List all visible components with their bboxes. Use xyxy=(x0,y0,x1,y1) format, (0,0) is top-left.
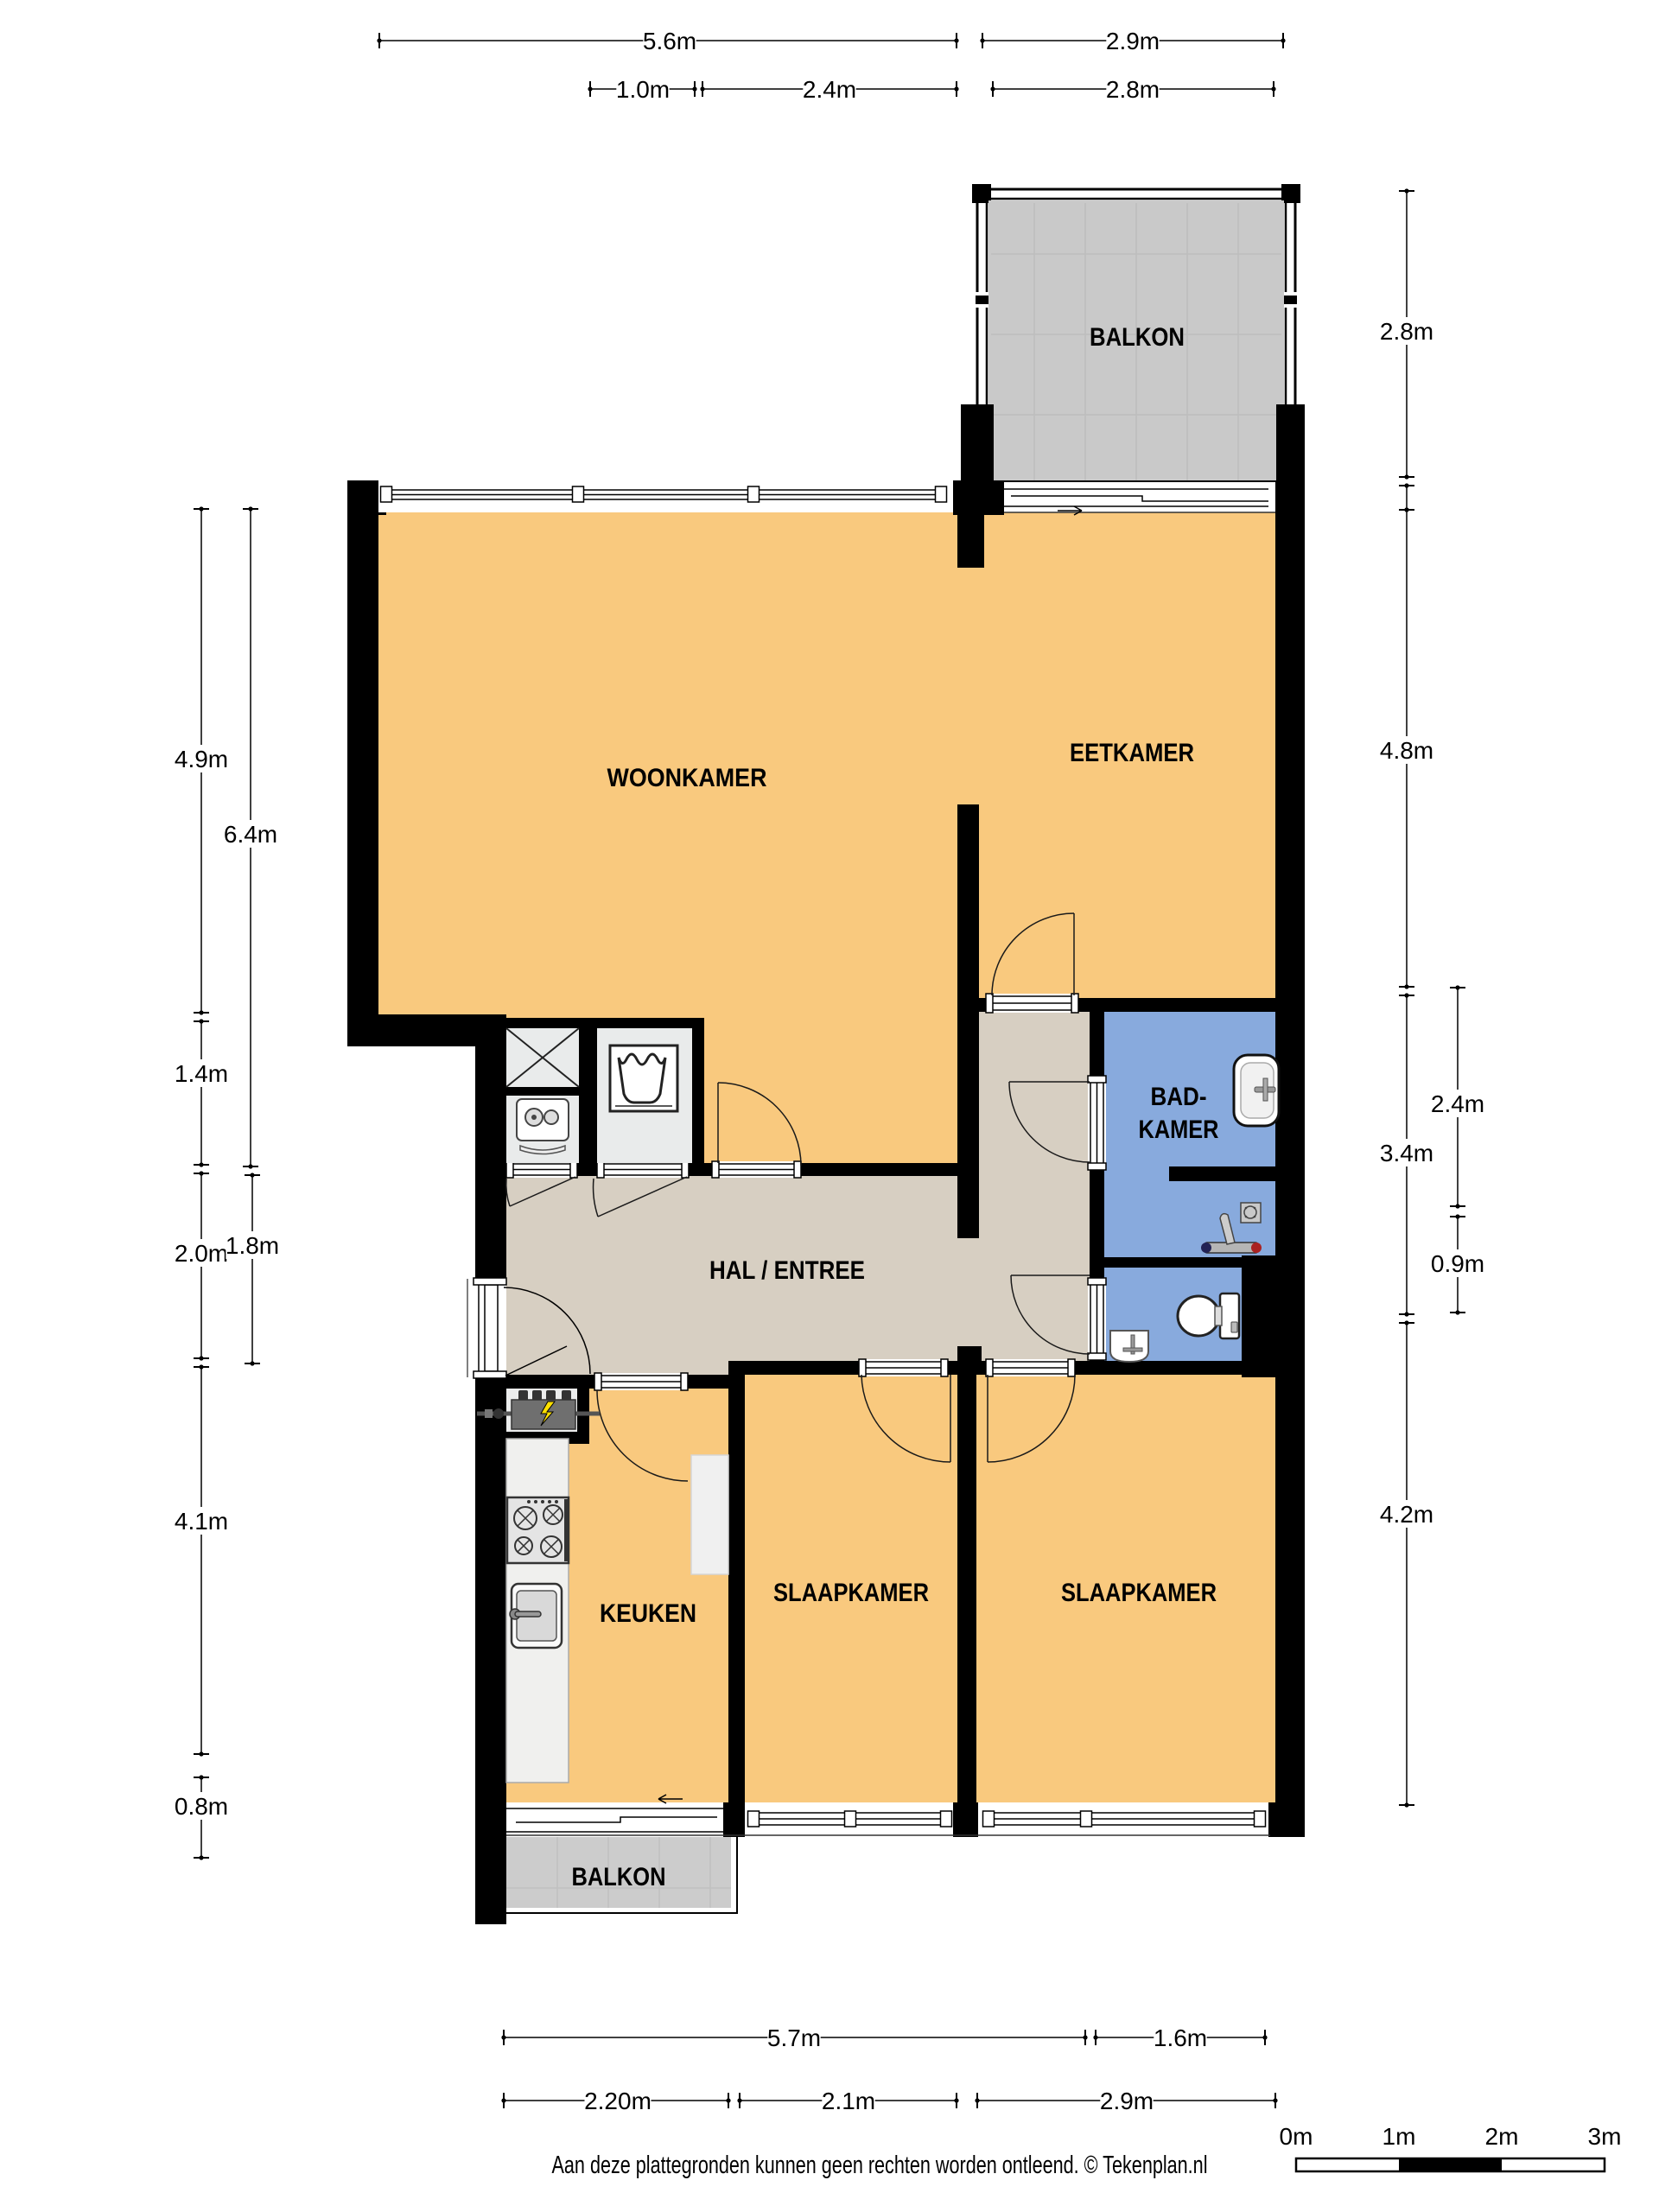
svg-text:1.4m: 1.4m xyxy=(175,1060,228,1087)
svg-text:KAMER: KAMER xyxy=(1139,1116,1219,1144)
svg-text:0m: 0m xyxy=(1280,2123,1313,2150)
svg-text:BALKON: BALKON xyxy=(572,1863,666,1891)
svg-text:4.2m: 4.2m xyxy=(1380,1501,1433,1528)
svg-text:2m: 2m xyxy=(1485,2123,1519,2150)
svg-text:BALKON: BALKON xyxy=(1090,323,1185,352)
svg-text:0.9m: 0.9m xyxy=(1431,1250,1484,1277)
svg-text:Aan deze plattegronden kunnen: Aan deze plattegronden kunnen geen recht… xyxy=(552,2152,1208,2179)
svg-text:1m: 1m xyxy=(1382,2123,1416,2150)
svg-text:2.4m: 2.4m xyxy=(1431,1090,1484,1117)
svg-text:3.4m: 3.4m xyxy=(1380,1140,1433,1166)
svg-text:4.9m: 4.9m xyxy=(175,746,228,772)
svg-text:WOONKAMER: WOONKAMER xyxy=(607,764,767,792)
svg-text:2.20m: 2.20m xyxy=(584,2088,652,2114)
svg-text:SLAAPKAMER: SLAAPKAMER xyxy=(1061,1579,1217,1607)
svg-text:5.6m: 5.6m xyxy=(643,28,696,54)
svg-text:3m: 3m xyxy=(1588,2123,1622,2150)
svg-text:2.9m: 2.9m xyxy=(1106,28,1160,54)
svg-text:2.9m: 2.9m xyxy=(1100,2088,1154,2114)
svg-text:HAL / ENTREE: HAL / ENTREE xyxy=(709,1256,865,1285)
svg-text:2.8m: 2.8m xyxy=(1380,318,1433,345)
svg-text:5.7m: 5.7m xyxy=(767,2024,821,2051)
svg-text:2.0m: 2.0m xyxy=(175,1240,228,1267)
svg-text:SLAAPKAMER: SLAAPKAMER xyxy=(773,1579,929,1607)
svg-text:0.8m: 0.8m xyxy=(175,1793,228,1820)
svg-text:2.1m: 2.1m xyxy=(822,2088,875,2114)
svg-text:4.1m: 4.1m xyxy=(175,1508,228,1535)
svg-text:1.0m: 1.0m xyxy=(616,76,670,103)
svg-text:1.6m: 1.6m xyxy=(1154,2024,1207,2051)
svg-text:2.4m: 2.4m xyxy=(803,76,856,103)
svg-text:BAD-: BAD- xyxy=(1151,1083,1207,1111)
svg-text:6.4m: 6.4m xyxy=(224,821,277,848)
svg-text:EETKAMER: EETKAMER xyxy=(1070,739,1194,767)
svg-text:2.8m: 2.8m xyxy=(1106,76,1160,103)
svg-text:KEUKEN: KEUKEN xyxy=(600,1599,696,1628)
svg-text:1.8m: 1.8m xyxy=(226,1232,279,1259)
svg-text:4.8m: 4.8m xyxy=(1380,737,1433,764)
